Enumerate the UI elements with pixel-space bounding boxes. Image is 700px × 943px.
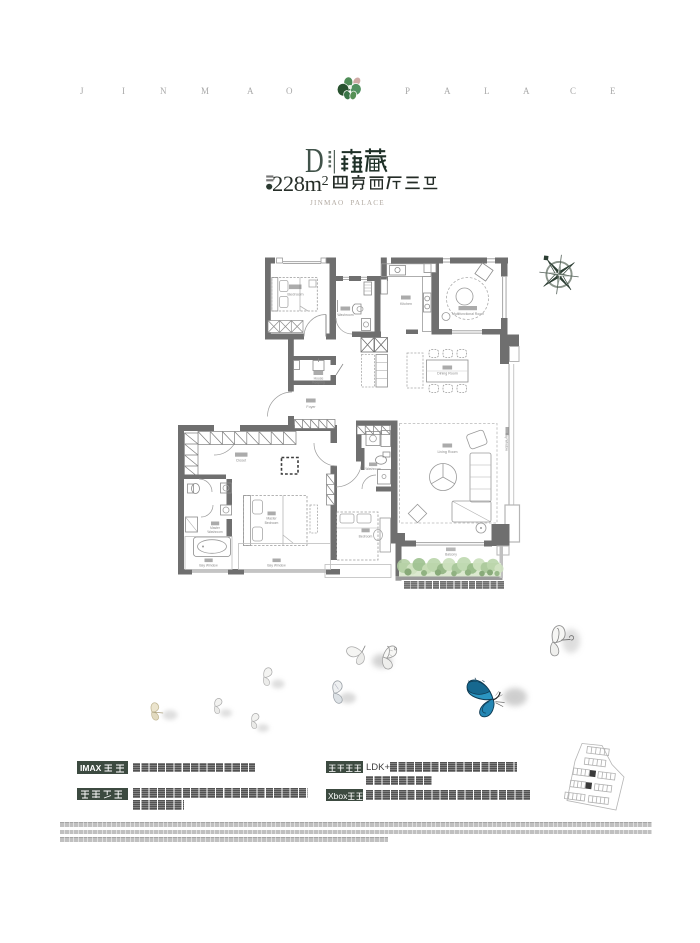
svg-text:Multifunctional Room: Multifunctional Room: [452, 312, 484, 316]
svg-text:Keeping: Keeping: [312, 381, 325, 385]
svg-text:Washroom: Washroom: [207, 530, 223, 534]
svg-text:Bay Window: Bay Window: [199, 564, 218, 568]
svg-text:Bay Window: Bay Window: [267, 564, 286, 568]
svg-text:Bedroom: Bedroom: [359, 535, 373, 539]
svg-text:Washroom: Washroom: [337, 313, 353, 317]
svg-text:Closet: Closet: [236, 459, 246, 463]
svg-text:Kitchen: Kitchen: [400, 302, 412, 306]
svg-text:Washroom: Washroom: [365, 467, 381, 471]
svg-text:Bedroom: Bedroom: [265, 521, 279, 525]
svg-text:Bedroom: Bedroom: [287, 292, 304, 297]
svg-text:Bay Window: Bay Window: [505, 433, 509, 451]
svg-text:Foyer: Foyer: [306, 405, 316, 409]
svg-text:Balcony: Balcony: [445, 553, 457, 557]
svg-text:Dining Room: Dining Room: [437, 372, 458, 376]
svg-text:Living Room: Living Room: [438, 450, 458, 454]
